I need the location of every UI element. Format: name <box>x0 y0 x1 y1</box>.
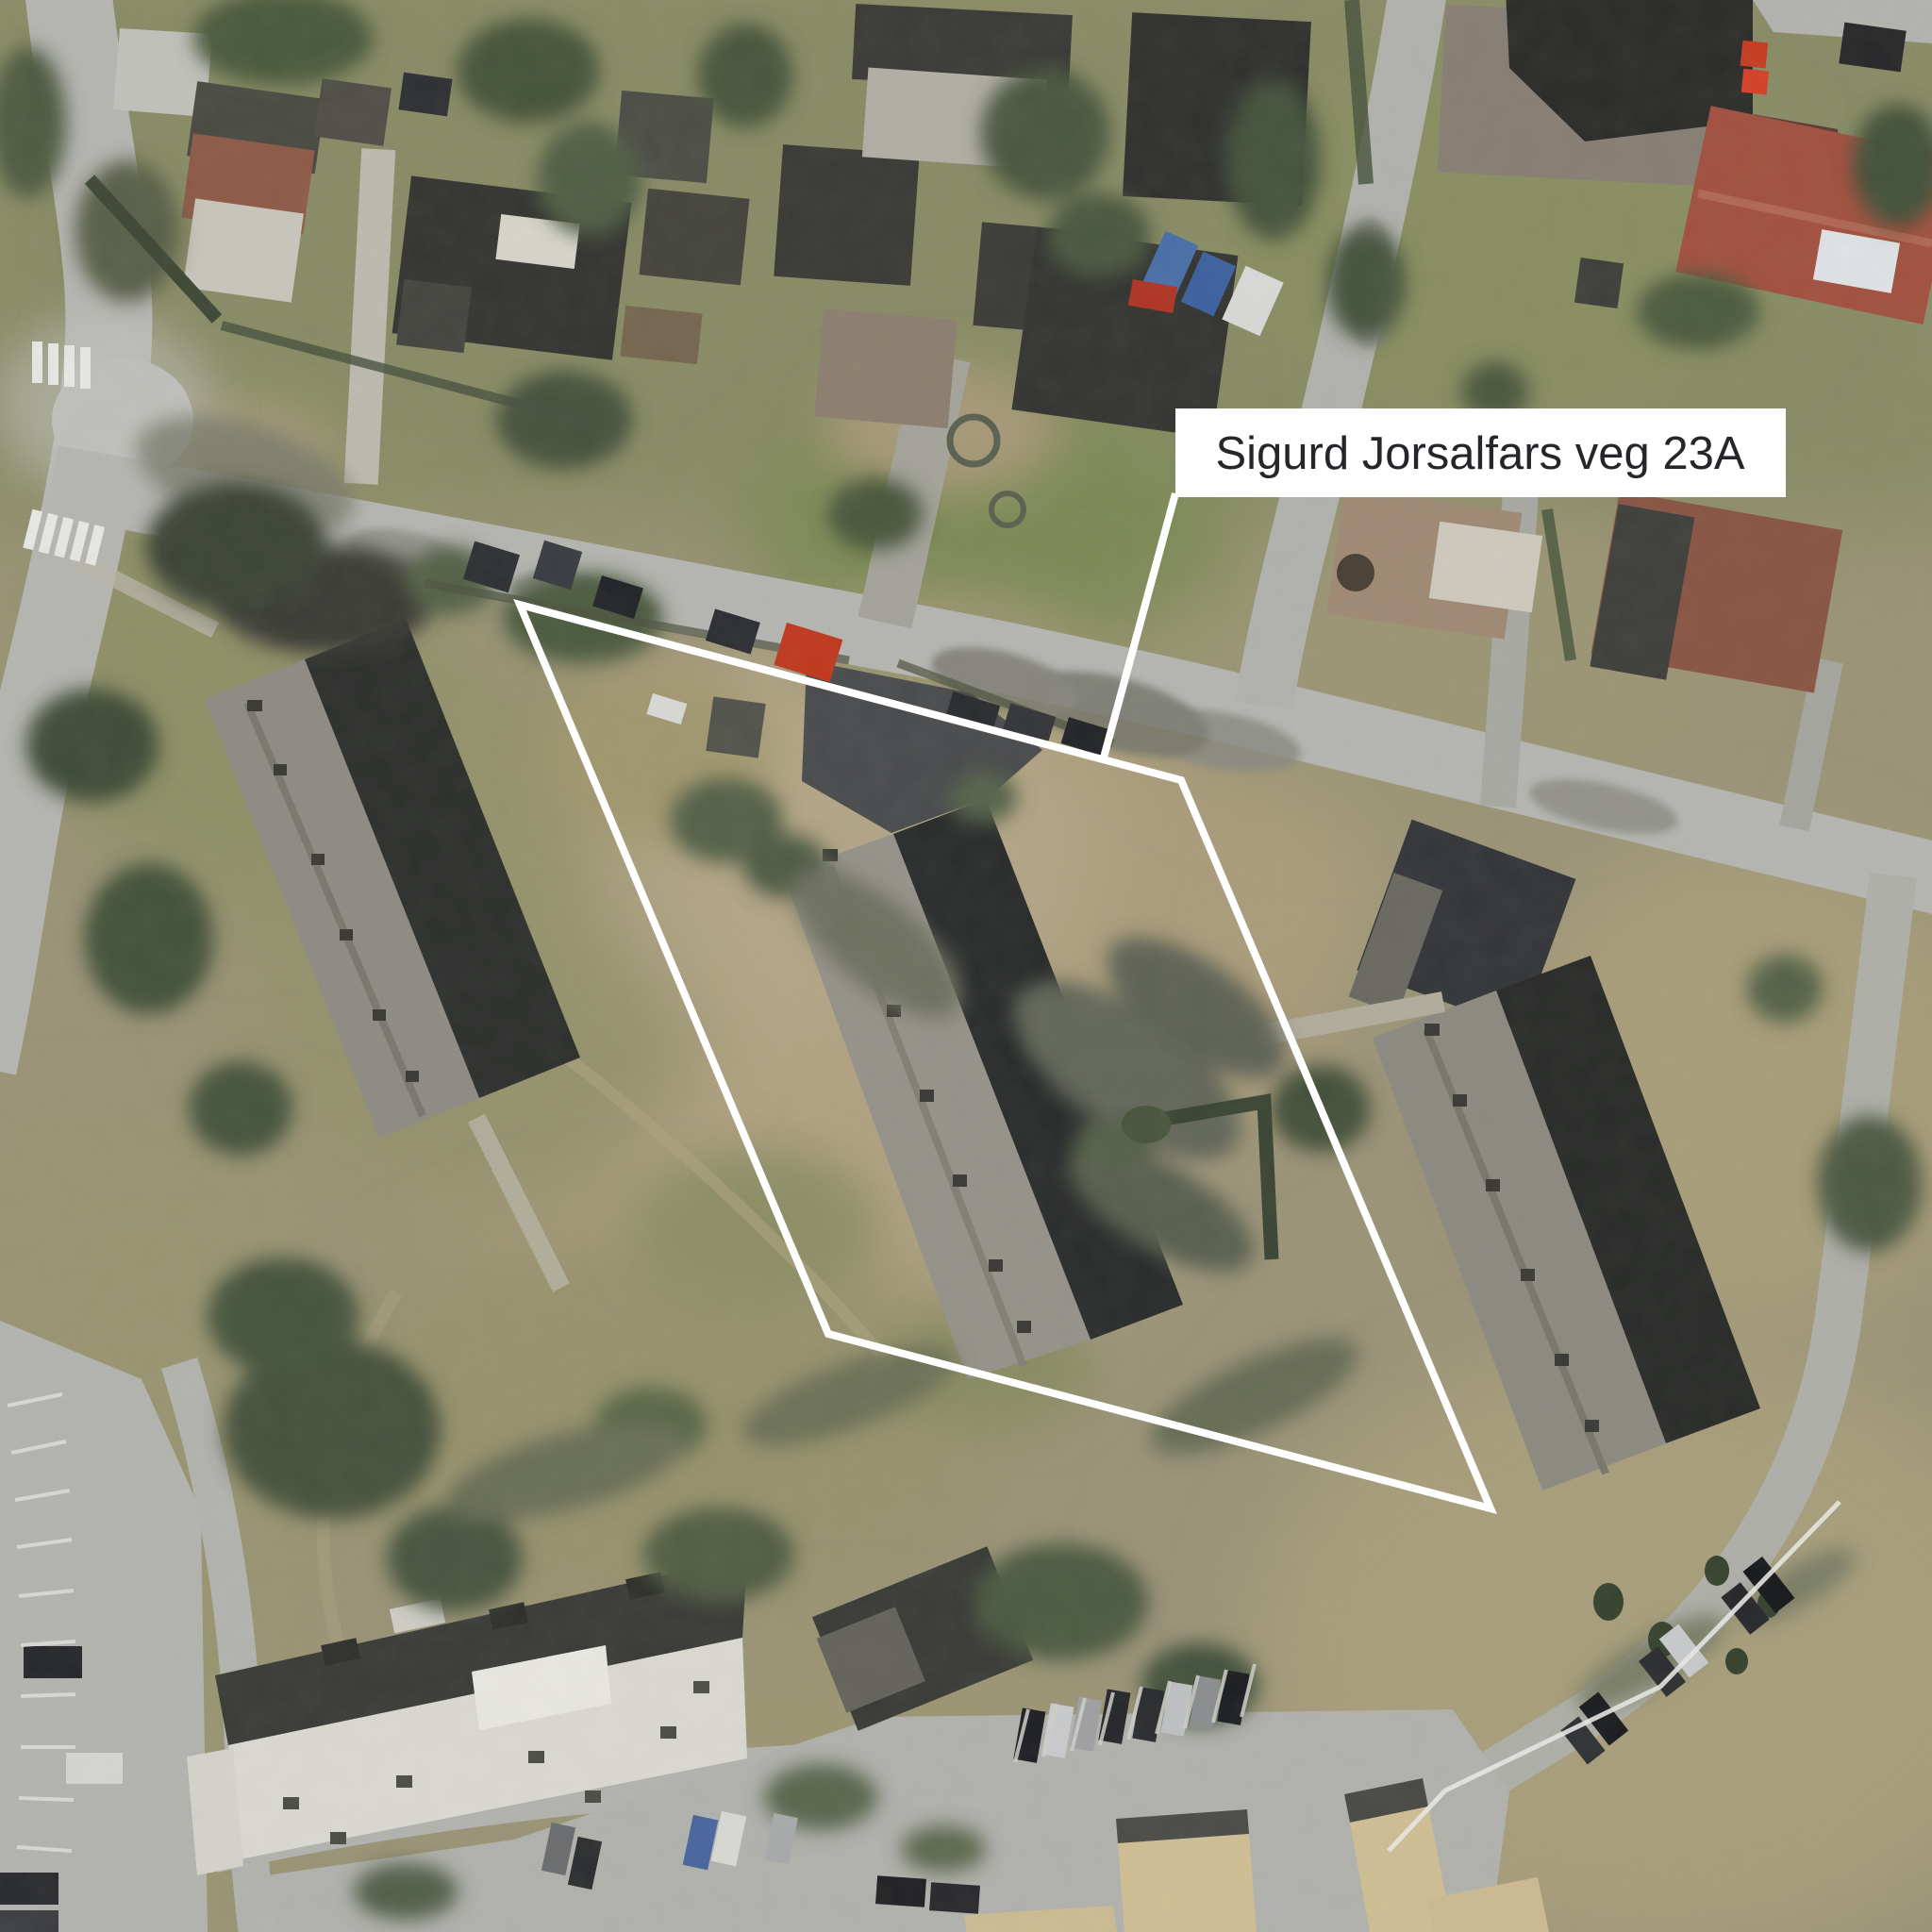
svg-text:Sigurd Jorsalfars veg 23A: Sigurd Jorsalfars veg 23A <box>1215 428 1744 479</box>
